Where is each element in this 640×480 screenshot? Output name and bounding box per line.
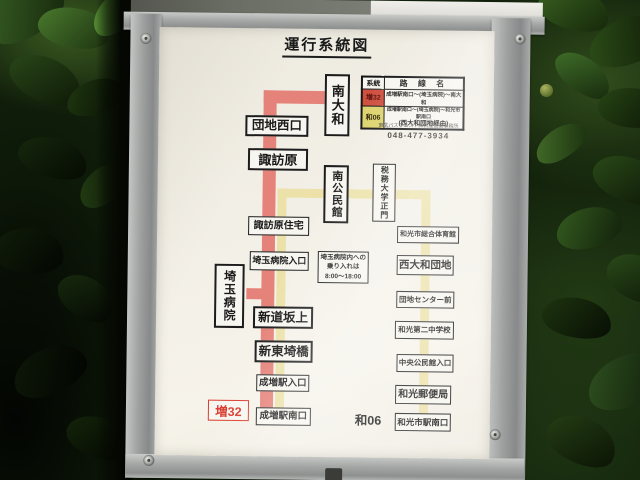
- station-narimasu-eki-iriguchi: 成増駅入口: [256, 374, 309, 392]
- phone-number: 048-477-3934: [368, 131, 468, 141]
- station-danchi-nishiguchi: 団地西口: [245, 115, 308, 137]
- route-line-masu32-top: [264, 90, 327, 104]
- station-saitama-byoin: 埼玉病院: [214, 264, 245, 328]
- page-title: 運行系統図: [159, 32, 494, 60]
- route-diagram-paper: 運行系統図 系統 路 線 名 増32 成増駅南口〜(埼玉病院)〜南大和 和06: [154, 27, 494, 459]
- station-minami-kominkan: 南公民館: [323, 165, 349, 223]
- bus-route-sign: 運行系統図 系統 路 線 名 増32 成増駅南口〜(埼玉病院)〜南大和 和06: [0, 0, 640, 480]
- station-chuo-kominkan-iriguchi: 中央公民館入口: [396, 354, 453, 373]
- screw: [490, 429, 501, 440]
- screw: [140, 33, 151, 44]
- station-suwahara-jutaku: 諏訪原住宅: [248, 216, 309, 236]
- station-nishi-yamato-danchi: 西大和団地: [397, 255, 454, 276]
- station-minami-yamato: 南大和: [324, 74, 350, 136]
- screw: [143, 455, 154, 466]
- legend-header-name: 路 線 名: [384, 77, 464, 90]
- legend-row1-name: 成増駅南口〜(埼玉病院)〜南大和: [384, 89, 464, 107]
- station-shindo-sakaue: 新道坂上: [253, 306, 313, 329]
- route-line-wa06-horizontal: [278, 188, 431, 199]
- route-label-masu32: 増32: [208, 400, 249, 421]
- station-suwahara: 諏訪原: [248, 148, 308, 171]
- station-wakoshi-eki-minamiguchi: 和光市駅南口: [395, 413, 451, 432]
- hospital-hours-note: 埼玉病院内への 乗り入れは 8:00〜18:00: [317, 251, 368, 284]
- mount-bracket: [325, 468, 342, 480]
- station-zeimu-daigaku-seimon: 税務大学正門: [372, 164, 396, 222]
- route-label-wa06: 和06: [355, 409, 382, 428]
- station-danchi-center-mae: 団地センター前: [396, 291, 454, 309]
- station-narimasu-eki-minamiguchi: 成増駅南口: [256, 407, 311, 426]
- station-wako-daini-chugakko: 和光第二中学校: [395, 321, 454, 340]
- station-wako-yubinkyoku: 和光郵便局: [395, 385, 451, 405]
- station-shin-tosaki-bashi: 新東埼橋: [255, 340, 313, 363]
- station-saitama-byoin-iriguchi: 埼玉病院入口: [250, 251, 309, 271]
- legend-header-route: 系統: [362, 77, 385, 90]
- photo-of-bus-route-sign: 運行系統図 系統 路 線 名 増32 成増駅南口〜(埼玉病院)〜南大和 和06: [0, 0, 640, 480]
- route-line-hospital-branch: [246, 288, 266, 299]
- operator-name: 東武バスウエスト㈱新座営業事務所: [368, 122, 468, 130]
- legend-row1-route: 増32: [362, 89, 385, 106]
- station-wakoshi-sogo-taiikukan: 和光市総合体育館: [397, 226, 459, 244]
- screw: [514, 33, 525, 44]
